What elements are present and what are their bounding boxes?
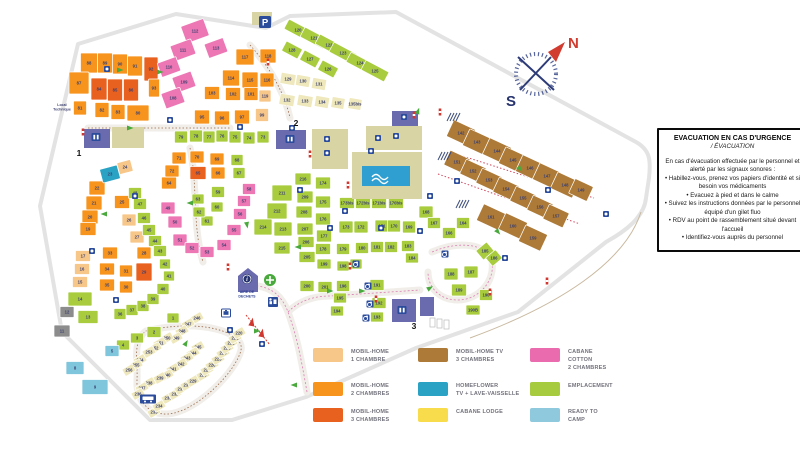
map-plot-168: 168	[419, 206, 433, 218]
svg-text:38: 38	[141, 304, 146, 309]
svg-text:2: 2	[294, 118, 299, 128]
utility-icon	[375, 135, 381, 141]
map-plot-174: 174	[316, 177, 331, 189]
svg-text:54: 54	[222, 243, 227, 248]
svg-text:194: 194	[334, 309, 342, 314]
svg-text:88: 88	[87, 61, 92, 66]
dis-icon	[367, 301, 374, 308]
map-plot-12: 12	[60, 307, 74, 318]
svg-text:174: 174	[320, 181, 328, 186]
svg-text:72: 72	[170, 169, 175, 174]
map-plot-69: 69	[210, 153, 224, 165]
pole-icon	[546, 278, 549, 285]
svg-text:81: 81	[78, 106, 83, 111]
svg-text:43: 43	[158, 249, 163, 254]
cam-icon	[222, 309, 231, 317]
legend-swatch-mobilhome-3ch	[313, 408, 343, 422]
map-plot-131: 131	[311, 77, 327, 90]
map-plot-52: 52	[185, 243, 199, 254]
svg-text:130: 130	[300, 79, 308, 84]
map-plot-56: 56	[234, 209, 247, 220]
wc-icon	[286, 135, 295, 143]
svg-text:155: 155	[520, 196, 528, 201]
svg-text:17: 17	[81, 254, 86, 259]
dis-icon	[353, 261, 360, 268]
svg-text:124: 124	[357, 61, 365, 66]
map-plot-213: 213	[274, 222, 292, 236]
map-plot-39: 39	[147, 294, 159, 305]
svg-text:159: 159	[530, 236, 538, 241]
bus-icon	[140, 395, 156, 404]
svg-text:70: 70	[195, 155, 200, 160]
map-plot-194: 194	[331, 306, 344, 316]
map-plot-19: 19	[80, 223, 96, 236]
svg-text:87: 87	[77, 81, 82, 86]
svg-text:129: 129	[285, 77, 293, 82]
map-plot-47: 47	[134, 199, 147, 210]
svg-text:DECHETS: DECHETS	[238, 294, 256, 298]
svg-text:67: 67	[237, 171, 242, 176]
map-plot-175: 175	[316, 196, 331, 208]
map-plot-63: 63	[192, 194, 204, 204]
svg-text:114: 114	[228, 76, 235, 81]
pole-icon	[439, 109, 442, 116]
svg-text:175: 175	[320, 200, 328, 205]
map-plot-177: 177	[317, 230, 332, 242]
svg-text:77: 77	[207, 135, 212, 140]
svg-text:34: 34	[105, 267, 110, 272]
svg-text:173bis: 173bis	[340, 201, 354, 206]
map-plot-37: 37	[126, 305, 138, 316]
svg-text:186: 186	[491, 256, 499, 261]
map-label: AIRE DEDECHETS	[238, 290, 256, 298]
wc-icon	[92, 133, 101, 141]
svg-text:39: 39	[151, 297, 156, 302]
map-plot-36: 36	[114, 309, 126, 320]
svg-text:96: 96	[220, 116, 225, 121]
svg-text:161: 161	[488, 215, 496, 220]
dis-icon	[363, 315, 370, 322]
svg-text:103: 103	[209, 91, 217, 96]
map-plot-8: 8	[66, 362, 84, 375]
map-plot-211: 211	[272, 185, 292, 201]
svg-text:21: 21	[92, 201, 97, 206]
map-label: 1	[77, 148, 82, 158]
map-plot-134: 134	[314, 95, 330, 108]
svg-text:35: 35	[105, 283, 110, 288]
svg-text:169: 169	[406, 225, 414, 230]
map-plot-11: 11	[54, 325, 70, 337]
svg-text:61: 61	[205, 219, 210, 224]
legend-swatch-ready-to-camp	[530, 408, 560, 422]
map-plot-2: 2	[147, 327, 161, 338]
svg-text:26: 26	[127, 218, 132, 223]
legend-swatch-homeflower	[418, 382, 448, 396]
svg-text:185: 185	[482, 249, 490, 254]
svg-text:166: 166	[446, 231, 454, 236]
map-plot-199: 199	[317, 259, 331, 269]
svg-text:109: 109	[181, 80, 189, 85]
svg-text:24: 24	[123, 165, 128, 170]
svg-text:76: 76	[220, 134, 225, 139]
map-plot-188: 188	[444, 268, 458, 280]
svg-text:176: 176	[320, 217, 328, 222]
svg-text:Technique: Technique	[53, 107, 71, 111]
svg-text:208: 208	[301, 210, 309, 215]
map-plot-50: 50	[168, 216, 182, 228]
map-plot-87: 87	[69, 72, 89, 94]
utility-icon	[324, 150, 330, 156]
map-plot-79: 79	[175, 131, 188, 143]
svg-text:52: 52	[190, 246, 195, 251]
map-plot-29: 29	[136, 263, 152, 281]
map-plot-176: 176	[316, 213, 331, 225]
svg-text:29: 29	[142, 270, 147, 275]
map-plot-164: 164	[457, 218, 470, 229]
map-plot-135: 135	[331, 96, 346, 109]
map-plot-88: 88	[81, 53, 98, 73]
svg-text:23: 23	[108, 172, 113, 177]
map-plot-14: 14	[68, 292, 92, 306]
map-plot-44: 44	[149, 236, 162, 247]
svg-text:164: 164	[460, 221, 468, 226]
map-plot-170: 170	[388, 220, 401, 232]
svg-text:110: 110	[166, 65, 173, 70]
pole-icon	[82, 129, 85, 136]
utility-icon	[259, 341, 265, 347]
svg-text:187: 187	[468, 270, 476, 275]
utility-icon	[393, 133, 399, 139]
svg-text:168: 168	[423, 210, 431, 215]
map-plot-115: 115	[242, 72, 258, 88]
svg-text:71: 71	[177, 156, 182, 161]
svg-text:183: 183	[405, 244, 413, 249]
svg-text:182: 182	[388, 245, 396, 250]
map-plot-3: 3	[131, 333, 144, 343]
map-plot-68: 68	[231, 155, 243, 166]
svg-text:131: 131	[316, 82, 324, 87]
map-plot-198: 198	[337, 261, 349, 271]
svg-text:102: 102	[230, 92, 238, 97]
map-plot-191: 191	[370, 280, 384, 291]
info-icon: i	[242, 274, 252, 284]
map-plot-64: 64	[162, 177, 177, 189]
map-plot-49: 49	[161, 202, 175, 214]
map-plot-129: 129	[280, 72, 297, 85]
svg-text:20: 20	[88, 215, 93, 220]
svg-text:157: 157	[553, 214, 561, 219]
svg-text:172bis: 172bis	[356, 201, 370, 206]
legend-item-homeflower: HOMEFLOWERTV + LAVE-VAISSELLE	[418, 382, 530, 399]
map-plot-173bis: 173bis	[340, 198, 355, 209]
svg-text:133: 133	[302, 99, 310, 104]
map-plot-132: 132	[279, 93, 296, 106]
legend-item-cabane-cotton: CABANE COTTON2 CHAMBRES	[530, 348, 609, 373]
map-plot-192: 192	[372, 298, 386, 309]
svg-text:25: 25	[120, 200, 125, 205]
map-plot-95: 95	[195, 110, 210, 124]
svg-text:56: 56	[238, 212, 243, 217]
map-plot-97: 97	[235, 110, 250, 124]
utility-icon	[545, 187, 551, 193]
svg-text:44: 44	[153, 239, 158, 244]
pole-icon	[489, 289, 492, 296]
svg-text:170: 170	[391, 224, 399, 229]
legend-swatch-mobilhome-1ch	[313, 348, 343, 362]
map-plot-60: 60	[211, 202, 223, 212]
utility-icon	[342, 208, 348, 214]
svg-text:30: 30	[124, 285, 129, 290]
map-plot-57: 57	[238, 196, 251, 207]
legend-item-emplacement: EMPLACEMENT	[530, 382, 609, 399]
map-plot-117: 117	[236, 49, 254, 65]
map-plot-184: 184	[406, 253, 419, 263]
svg-text:73: 73	[261, 135, 266, 140]
svg-text:167: 167	[431, 221, 439, 226]
map-plot-1: 1	[167, 313, 179, 323]
svg-text:92: 92	[149, 67, 154, 72]
svg-text:178: 178	[320, 247, 328, 252]
svg-text:147: 147	[544, 174, 552, 179]
svg-text:3: 3	[412, 321, 417, 331]
map-plot-65: 65	[190, 167, 206, 180]
legend-swatch-mobilhome-tv	[418, 348, 448, 362]
svg-text:191: 191	[374, 283, 382, 288]
map-plot-58: 58	[243, 184, 256, 195]
pole-icon	[267, 59, 270, 66]
svg-text:152: 152	[470, 169, 478, 174]
map-plot-92: 92	[144, 57, 158, 81]
svg-text:142: 142	[458, 131, 466, 136]
map-plot-96: 96	[215, 111, 230, 125]
map-plot-73: 73	[257, 131, 269, 143]
map-plot-61: 61	[201, 216, 213, 226]
svg-text:196: 196	[340, 284, 348, 289]
svg-text:120: 120	[295, 28, 303, 33]
map-plot-178: 178	[316, 244, 331, 255]
svg-text:89: 89	[103, 61, 108, 66]
svg-text:128: 128	[289, 48, 297, 53]
map-plot-78: 78	[190, 130, 203, 142]
svg-text:46: 46	[142, 216, 147, 221]
svg-text:127: 127	[307, 57, 315, 62]
svg-text:75: 75	[233, 135, 238, 140]
dis-icon	[365, 283, 372, 290]
svg-text:205: 205	[304, 255, 312, 260]
svg-text:40: 40	[161, 287, 166, 292]
map-plot-114: 114	[223, 70, 240, 86]
utility-icon	[227, 327, 233, 333]
building-services-2	[312, 129, 348, 169]
svg-text:1: 1	[77, 148, 82, 158]
svg-text:180: 180	[359, 246, 367, 251]
dis-icon	[442, 251, 449, 258]
map-plot-16: 16	[75, 264, 90, 275]
pole-icon	[227, 264, 230, 271]
utility-icon	[502, 255, 508, 261]
map-label: 2	[294, 118, 299, 128]
map-plot-71: 71	[172, 152, 186, 164]
svg-text:83: 83	[116, 110, 121, 115]
map-plot-26: 26	[122, 214, 136, 226]
svg-text:211: 211	[279, 191, 286, 196]
utility-icon	[104, 66, 110, 72]
svg-text:51: 51	[178, 238, 183, 243]
pole-icon	[309, 151, 312, 158]
svg-text:172: 172	[358, 225, 366, 230]
svg-text:177: 177	[321, 234, 329, 239]
utility-icon	[89, 248, 95, 254]
svg-text:246: 246	[194, 316, 202, 321]
svg-text:113: 113	[213, 46, 220, 51]
map-plot-62: 62	[193, 207, 205, 217]
pole-icon	[349, 263, 352, 270]
svg-text:66: 66	[216, 171, 221, 176]
legend-item-mobilhome-3ch: MOBIL-HOME3 CHAMBRES	[313, 408, 418, 425]
legend-item-mobilhome-tv: MOBIL-HOME TV3 CHAMBRES	[418, 348, 530, 373]
svg-text:154: 154	[503, 187, 511, 192]
utility-icon	[454, 178, 460, 184]
svg-text:85: 85	[113, 88, 118, 93]
map-plot-66: 66	[211, 167, 225, 179]
svg-text:27: 27	[135, 235, 140, 240]
campground-map-page: 8889909192878485869381828380112111113110…	[0, 0, 800, 450]
legend-swatch-emplacement	[530, 382, 560, 396]
map-plot-116: 116	[260, 73, 274, 87]
svg-text:117: 117	[242, 55, 249, 60]
wc-icon	[398, 306, 407, 314]
evacuation-body: En cas d'évacuation effectuée par le per…	[663, 158, 800, 243]
svg-text:41: 41	[167, 274, 172, 279]
utility-icon	[237, 124, 243, 130]
svg-text:170bis: 170bis	[389, 201, 403, 206]
legend-item-mobilhome-1ch: MOBIL-HOME1 CHAMBRE	[313, 348, 418, 373]
svg-text:42: 42	[163, 262, 168, 267]
map-plot-170bis: 170bis	[389, 198, 404, 209]
svg-text:91: 91	[133, 64, 138, 69]
utility-icon	[327, 225, 333, 231]
svg-text:149: 149	[578, 188, 586, 193]
map-plot-21: 21	[86, 196, 102, 210]
svg-text:19: 19	[86, 227, 91, 232]
svg-text:181: 181	[374, 245, 382, 250]
map-plot-133: 133	[297, 94, 314, 107]
map-plot-99: 99	[256, 109, 269, 122]
svg-text:59: 59	[216, 190, 221, 195]
map-plot-74: 74	[243, 132, 255, 144]
svg-text:207: 207	[302, 227, 310, 232]
svg-text:13: 13	[86, 315, 91, 320]
map-plot-195: 195	[334, 293, 347, 303]
svg-text:118: 118	[265, 54, 272, 59]
svg-text:93: 93	[152, 86, 157, 91]
svg-text:80: 80	[136, 111, 141, 116]
utility-icon	[324, 136, 330, 142]
map-plot-183: 183	[402, 241, 415, 252]
svg-text:86: 86	[129, 88, 134, 93]
svg-text:49: 49	[166, 206, 171, 211]
svg-text:P: P	[262, 17, 269, 28]
map-plot-70: 70	[190, 151, 204, 163]
svg-text:116: 116	[264, 78, 271, 83]
map-plot-173: 173	[339, 221, 353, 233]
utility-icon	[401, 114, 407, 120]
map-plot-85: 85	[108, 79, 123, 101]
svg-text:234: 234	[156, 404, 164, 409]
svg-text:97: 97	[240, 115, 245, 120]
svg-text:31: 31	[124, 269, 129, 274]
svg-text:256: 256	[126, 368, 134, 373]
svg-text:22: 22	[95, 186, 100, 191]
map-legend: MOBIL-HOME1 CHAMBRE MOBIL-HOME TV3 CHAMB…	[313, 348, 609, 425]
svg-text:63: 63	[196, 197, 201, 202]
svg-text:58: 58	[247, 187, 252, 192]
legend-item-cabane-lodge: CABANE LODGE	[418, 408, 530, 425]
utility-icon	[167, 117, 173, 123]
svg-text:134: 134	[319, 100, 327, 105]
svg-text:212: 212	[274, 209, 282, 214]
utility-icon	[417, 228, 423, 234]
utility-icon	[113, 297, 119, 303]
map-plot-86: 86	[124, 79, 139, 101]
map-plot-130: 130	[295, 74, 311, 87]
map-plot-28: 28	[137, 247, 151, 259]
svg-text:50: 50	[173, 220, 178, 225]
compass-s-label: S	[506, 93, 516, 110]
svg-text:69: 69	[215, 157, 220, 162]
svg-text:47: 47	[138, 202, 143, 207]
map-plot-33: 33	[103, 247, 118, 259]
svg-text:37: 37	[130, 308, 135, 313]
pole-icon	[413, 112, 416, 119]
building-services-1	[112, 127, 144, 148]
svg-text:190B: 190B	[468, 308, 478, 313]
map-plot-166: 166	[443, 228, 456, 239]
map-label: 3	[412, 321, 417, 331]
map-plot-91: 91	[128, 56, 143, 76]
map-plot-212: 212	[267, 203, 287, 219]
map-plot-22: 22	[89, 181, 105, 195]
map-plot-187: 187	[464, 266, 478, 278]
svg-text:33: 33	[108, 251, 113, 256]
map-plot-167: 167	[428, 218, 441, 229]
svg-text:145: 145	[510, 158, 518, 163]
map-plot-135bis: 135bis	[348, 97, 363, 110]
map-plot-53: 53	[200, 247, 214, 258]
map-plot-46: 46	[138, 213, 151, 224]
utility-icon	[132, 193, 138, 199]
map-plot-13: 13	[78, 311, 98, 324]
map-plot-101: 101	[244, 88, 258, 101]
map-plot-15: 15	[73, 277, 88, 288]
svg-text:213: 213	[280, 227, 288, 232]
svg-text:84: 84	[97, 87, 102, 92]
svg-text:151: 151	[454, 160, 462, 165]
map-plot-43: 43	[154, 246, 167, 257]
map-plot-172: 172	[354, 221, 368, 233]
map-plot-42: 42	[160, 259, 171, 269]
svg-text:135bis: 135bis	[348, 102, 362, 107]
map-plot-207: 207	[297, 223, 313, 235]
svg-text:215: 215	[279, 246, 287, 251]
svg-text:195: 195	[337, 296, 345, 301]
svg-text:101: 101	[248, 92, 256, 97]
map-plot-76: 76	[216, 130, 228, 142]
svg-text:79: 79	[179, 135, 184, 140]
compass-n-label: N	[568, 35, 579, 52]
svg-text:74: 74	[247, 136, 252, 141]
map-plot-171bis: 171bis	[372, 198, 387, 209]
